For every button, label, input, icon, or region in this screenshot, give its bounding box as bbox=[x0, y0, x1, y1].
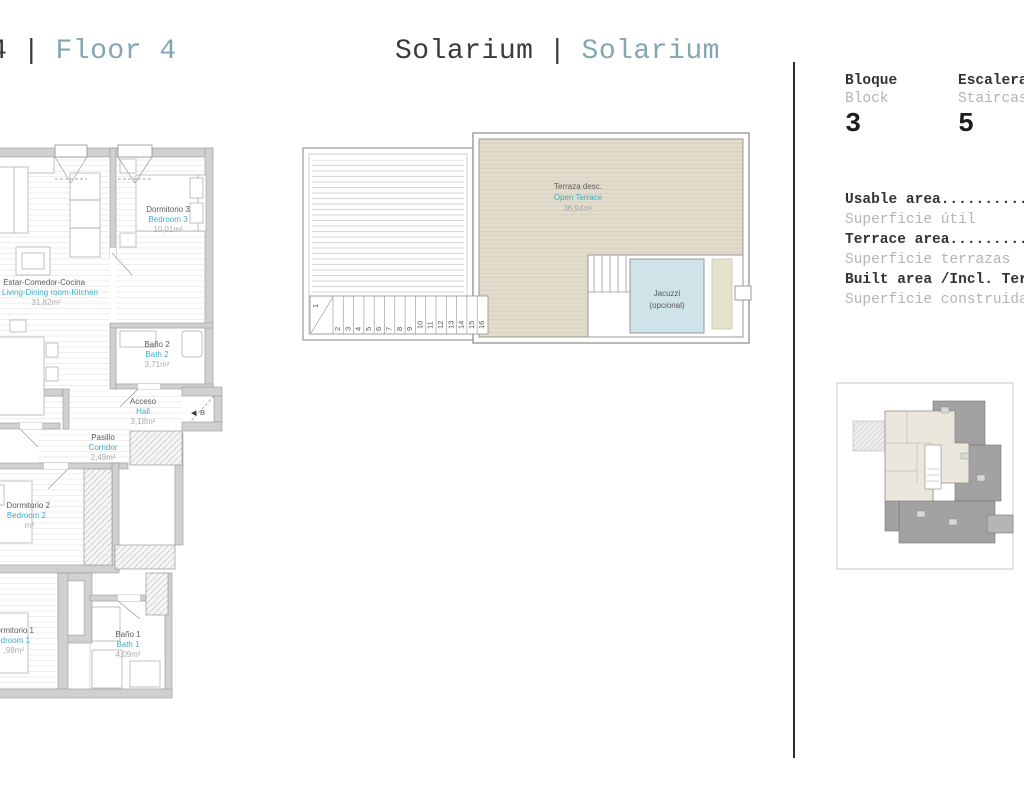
svg-text:4,09m²: 4,09m² bbox=[116, 650, 141, 659]
svg-text:Bedroom 1: Bedroom 1 bbox=[0, 636, 31, 645]
wall-notch bbox=[735, 286, 751, 300]
wardrobe-vertical bbox=[146, 573, 168, 615]
svg-text:2: 2 bbox=[333, 327, 342, 331]
svg-text:Living-Dining room-Kitchen: Living-Dining room-Kitchen bbox=[2, 288, 98, 297]
svg-text:31,82m²: 31,82m² bbox=[31, 298, 61, 307]
svg-text:10,01m²: 10,01m² bbox=[153, 225, 183, 234]
svg-text:Dormitorio 2: Dormitorio 2 bbox=[6, 501, 50, 510]
svg-text:11: 11 bbox=[426, 321, 435, 329]
svg-text:Bedroom 3: Bedroom 3 bbox=[148, 215, 188, 224]
solarium-staircase: 1 2 3 4 5 6 7 8 9 10 11 12 13 14 15 16 bbox=[310, 296, 488, 334]
plan-sheet: Planta 4|Floor 4 Solarium|Solarium Bloqu… bbox=[0, 0, 1024, 800]
svg-text:3,71m²: 3,71m² bbox=[145, 360, 170, 369]
svg-text:16: 16 bbox=[477, 321, 486, 329]
svg-text:15: 15 bbox=[467, 321, 476, 329]
entrance-label: B bbox=[200, 408, 205, 417]
svg-text:2,49m²: 2,49m² bbox=[91, 453, 116, 462]
svg-text:9: 9 bbox=[405, 327, 414, 331]
svg-text:Baño 2: Baño 2 bbox=[144, 340, 170, 349]
key-plan bbox=[837, 383, 1013, 569]
svg-text:Open Terrace: Open Terrace bbox=[554, 193, 603, 202]
room-label-bath2: Baño 2 Bath 2 3,71m² bbox=[144, 340, 170, 369]
svg-text:13: 13 bbox=[446, 321, 455, 329]
wardrobe-horizontal bbox=[115, 545, 175, 569]
room-label-corridor: Pasillo Corridor 2,49m² bbox=[89, 433, 118, 462]
svg-text:,98m²: ,98m² bbox=[4, 646, 25, 655]
keyplan-core bbox=[925, 445, 941, 489]
entrance-arrow-icon: ◀ bbox=[191, 410, 197, 417]
svg-text:1: 1 bbox=[311, 304, 320, 308]
svg-text:7: 7 bbox=[385, 327, 394, 331]
svg-text:10: 10 bbox=[415, 321, 424, 329]
closet-corridor bbox=[130, 431, 182, 465]
wardrobe-bedroom2 bbox=[84, 469, 112, 565]
svg-text:Bath 1: Bath 1 bbox=[116, 640, 140, 649]
entrance-marker: ◀ B bbox=[191, 408, 205, 417]
room-label-bath1: Baño 1 Bath 1 4,09m² bbox=[115, 630, 141, 659]
svg-text:Acceso: Acceso bbox=[130, 397, 157, 406]
pergola-roof bbox=[312, 160, 464, 294]
svg-text:5: 5 bbox=[364, 327, 373, 331]
svg-text:m²: m² bbox=[25, 521, 35, 530]
svg-text:Pasillo: Pasillo bbox=[91, 433, 115, 442]
jacuzzi-label-2: (opcional) bbox=[649, 301, 684, 310]
jacuzzi-label: Jacuzzi bbox=[654, 289, 681, 298]
svg-text:Bedroom 2: Bedroom 2 bbox=[7, 511, 47, 520]
svg-text:Dormitorio 3: Dormitorio 3 bbox=[146, 205, 190, 214]
floor4-plan: Dormitorio 3 Bedroom 3 10,01m² Estar-Com… bbox=[0, 145, 222, 698]
svg-text:36,94m²: 36,94m² bbox=[563, 204, 593, 213]
svg-text:12: 12 bbox=[436, 321, 445, 329]
svg-text:Baño 1: Baño 1 bbox=[115, 630, 141, 639]
svg-text:Bath 2: Bath 2 bbox=[145, 350, 169, 359]
svg-text:Estar-Comedor-Cocina: Estar-Comedor-Cocina bbox=[3, 278, 85, 287]
svg-text:6: 6 bbox=[374, 327, 383, 331]
solarium-plan: Jacuzzi (opcional) Terraza desc. Open Te… bbox=[303, 133, 751, 343]
svg-text:Corridor: Corridor bbox=[89, 443, 118, 452]
svg-text:8: 8 bbox=[395, 327, 404, 331]
planter bbox=[712, 259, 732, 329]
svg-text:Terraza desc.: Terraza desc. bbox=[554, 182, 602, 191]
svg-text:3,18m²: 3,18m² bbox=[131, 417, 156, 426]
svg-text:14: 14 bbox=[457, 321, 466, 329]
svg-text:Hall: Hall bbox=[136, 407, 150, 416]
plan-drawings: Dormitorio 3 Bedroom 3 10,01m² Estar-Com… bbox=[0, 0, 1024, 800]
keyplan-terrace bbox=[853, 421, 887, 451]
svg-text:Dormitorio 1: Dormitorio 1 bbox=[0, 626, 35, 635]
svg-text:3: 3 bbox=[343, 327, 352, 331]
svg-text:4: 4 bbox=[354, 327, 363, 331]
